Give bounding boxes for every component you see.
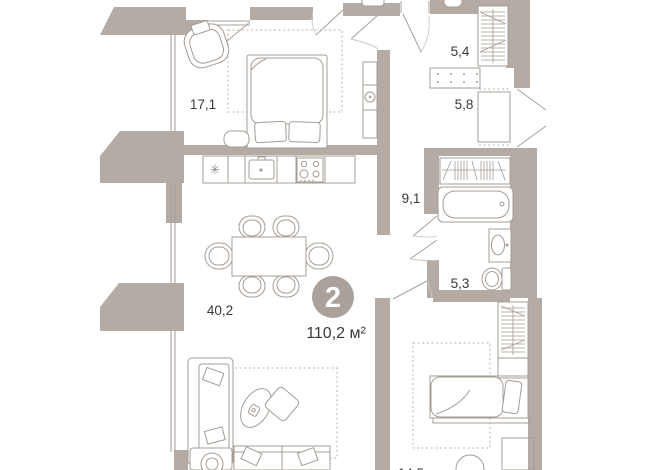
kitchen-sink	[249, 157, 274, 179]
room-area-label: 9,1	[402, 191, 421, 206]
hallway: 5,8	[455, 89, 510, 145]
neighbor-toilet	[444, 0, 462, 7]
total-area: 110,2 м²	[306, 325, 366, 342]
corridor: 9,1	[402, 191, 421, 206]
double-bed	[224, 55, 327, 148]
room-count: 2	[325, 282, 341, 314]
single-bed	[430, 376, 530, 423]
runner-rug	[478, 89, 510, 145]
dining-table	[232, 237, 306, 276]
toilet	[482, 268, 511, 290]
room-area-label: 5,3	[451, 276, 470, 291]
kitchen-counter	[203, 156, 355, 183]
wc: 5,3	[451, 229, 511, 291]
neighbor-sink	[362, 0, 384, 6]
wardrobe-shelf	[440, 158, 510, 184]
entry-hall: 5,4	[430, 6, 508, 88]
floor-plan: 17,1 ✳ 40,2	[0, 0, 654, 470]
desk-chair	[456, 455, 484, 470]
side-table-lamp	[190, 448, 232, 470]
bathtub	[438, 187, 513, 222]
wardrobe-column	[363, 62, 377, 138]
shelf	[498, 358, 528, 378]
room-area-label: 17,1	[190, 97, 216, 112]
room-area-label: 5,8	[455, 97, 474, 112]
kitchen: ✳	[203, 156, 355, 183]
bedroom-2: 14,5	[398, 302, 534, 470]
room-area-label: 40,2	[207, 303, 233, 318]
bed-footboard	[433, 418, 530, 423]
washbasin	[489, 229, 511, 262]
fridge-icon: ✳	[210, 162, 221, 177]
ottoman	[264, 386, 301, 423]
room-area-label-cut: 14,5	[398, 466, 424, 470]
cut-fixtures-top	[362, 0, 462, 7]
wardrobe	[498, 302, 528, 378]
wardrobe	[478, 6, 508, 66]
bedside-bench	[224, 131, 249, 147]
floor-plan-drawing: 17,1 ✳ 40,2	[0, 0, 654, 470]
bedroom-1: 17,1	[180, 17, 377, 148]
shoe-rack	[430, 68, 480, 88]
room-area-label: 5,4	[451, 44, 470, 59]
bathroom	[438, 158, 513, 222]
total-area-badge: 2 110,2 м²	[306, 276, 366, 342]
living-room: 40,2	[188, 216, 337, 470]
